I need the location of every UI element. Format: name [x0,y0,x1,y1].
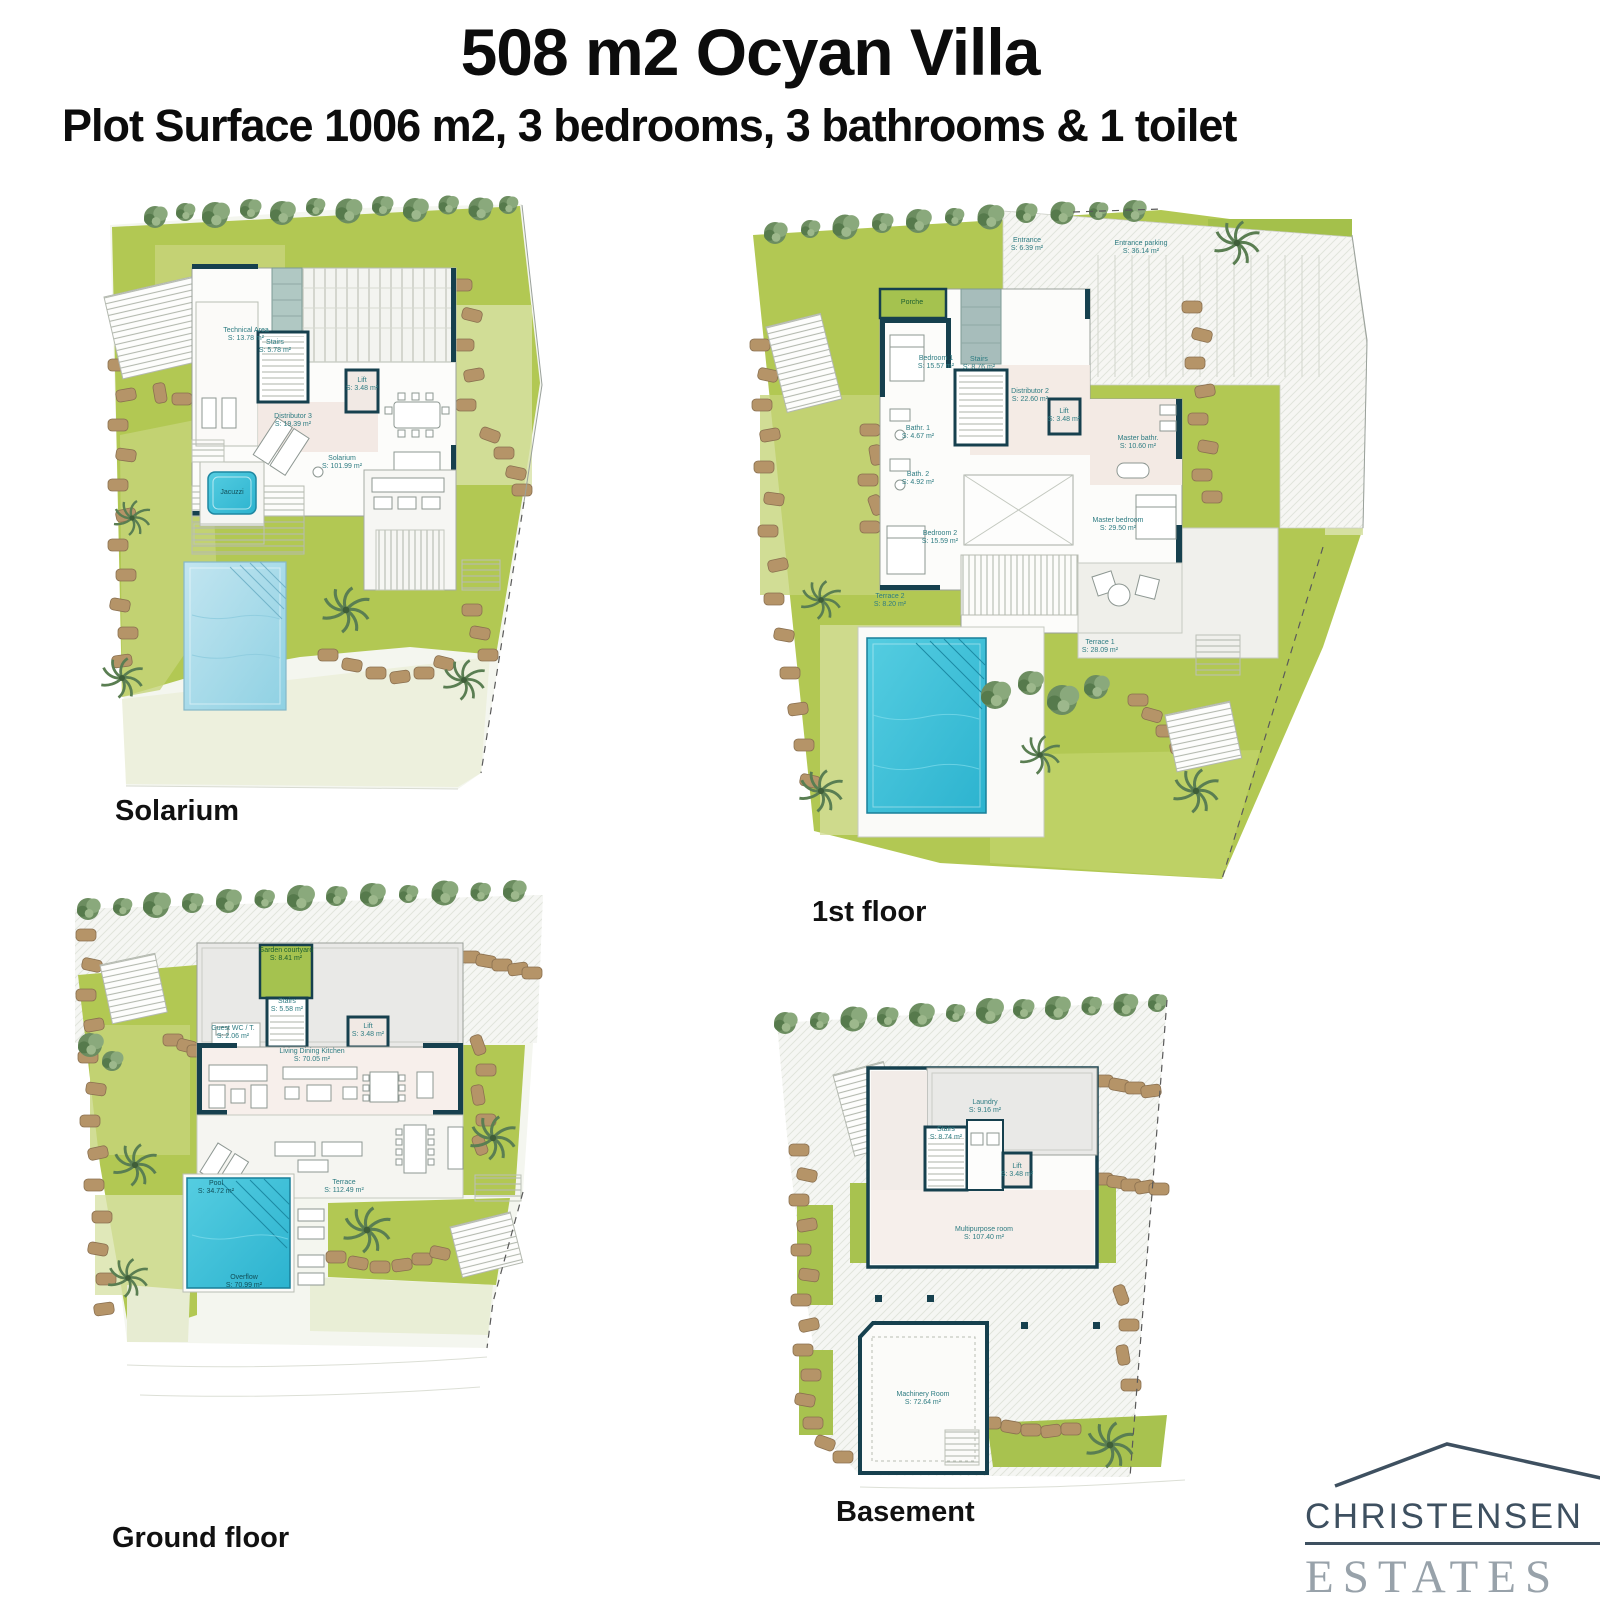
room-label: EntranceS: 6.39 m² [1011,237,1043,253]
room-label: Jacuzzi [220,489,243,497]
pool [184,562,286,710]
room-label: StairsS: 8.76 m² [963,356,995,372]
room-label: Guest WC / T.S: 2.06 m² [211,1025,254,1041]
room-label: Master bedroomS: 29.50 m² [1093,517,1144,533]
logo-divider [1305,1542,1600,1545]
room-label: Bedroom 1S: 15.57 m² [918,355,954,371]
room-label: Porche [901,299,923,307]
room-label: StairsS: 5.78 m² [259,339,291,355]
room-label: StairsS: 8.74 m² [930,1126,962,1142]
outdoor-stair [1196,635,1240,675]
logo-name: CHRISTENSEN [1305,1497,1600,1537]
logo-estates: ESTATES [1305,1550,1600,1604]
room-label: Bedroom 2S: 15.59 m² [922,530,958,546]
room-label: Distributor 3S: 19.39 m² [274,413,312,429]
page-title: 508 m2 Ocyan Villa [0,14,1500,90]
floorplan-ground-floor: Garden courtyardS: 8.41 m² StairsS: 5.58… [60,865,580,1565]
access-ramp [100,953,167,1023]
terrace-furniture [1078,563,1182,633]
pergola-terrace [364,470,456,590]
room-label: Garden courtyardS: 8.41 m² [259,947,313,963]
room-label: TerraceS: 112.49 m² [324,1179,364,1195]
room-label: LiftS: 3.48 m² [346,377,378,393]
outdoor-stair [462,560,500,590]
floorplan-solarium: Technical AreaS: 13.78 m² StairsS: 5.78 … [60,185,720,835]
room-label: Terrace 1S: 28.09 m² [1082,639,1118,655]
room-label: Master bathr.S: 10.60 m² [1118,435,1159,451]
skylight [961,289,1001,364]
room-label: LaundryS: 9.16 m² [969,1099,1001,1115]
room-label: OverflowS: 70.99 m² [226,1274,262,1290]
room-label: Entrance parkingS: 36.14 m² [1115,240,1168,256]
room-label: LiftS: 3.48 m² [1048,408,1080,424]
room-label: Living Dining KitchenS: 70.05 m² [279,1048,344,1064]
room-label: SolariumS: 101.99 m² [322,455,362,471]
pool [867,638,986,813]
page-subtitle: Plot Surface 1006 m2, 3 bedrooms, 3 bath… [62,100,1236,152]
room-label: Distributor 2S: 22.60 m² [1011,388,1049,404]
room-label: Multipurpose roomS: 107.40 m² [955,1226,1013,1242]
caption-solarium: Solarium [115,795,239,828]
room-label: StairsS: 5.58 m² [271,998,303,1014]
room-label: Bathr. 1S: 4.67 m² [902,425,934,441]
caption-first-floor: 1st floor [812,896,926,929]
room-label: Bath. 2S: 4.92 m² [902,471,934,487]
floorplan-first-floor: Porche EntranceS: 6.39 m² Entrance parki… [740,195,1420,885]
caption-basement: Basement [836,1496,975,1529]
christensen-estates-logo: CHRISTENSEN ESTATES [1305,1424,1600,1604]
room-label: LiftS: 3.48 m² [1001,1163,1033,1179]
roof-icon [1305,1424,1600,1490]
room-label: LiftS: 3.48 m² [352,1023,384,1039]
laundry [967,1120,1003,1190]
caption-ground-floor: Ground floor [112,1522,289,1555]
room-label: Terrace 2S: 8.20 m² [874,593,906,609]
outdoor-stair [475,1175,521,1201]
page: { "page": { "title": "508 m2 Ocyan Villa… [0,0,1600,1600]
room-label: PoolS: 34.72 m² [198,1180,234,1196]
wide-steps [961,555,1078,615]
room-label: Machinery RoomS: 72.64 m² [897,1391,950,1407]
